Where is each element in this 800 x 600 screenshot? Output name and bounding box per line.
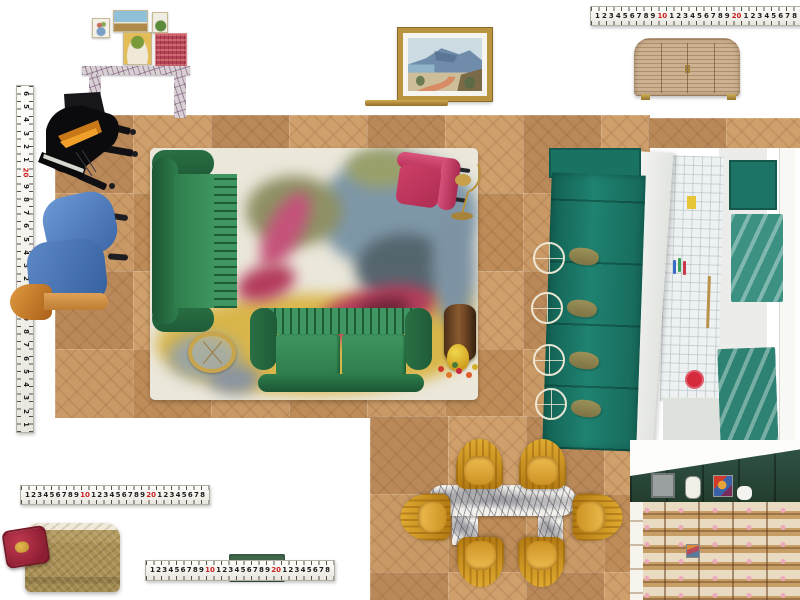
kitchen-wrapped-cabinet xyxy=(731,214,783,302)
chair-seat xyxy=(465,541,496,570)
ruler-number: 3 xyxy=(609,13,614,20)
credenza-door-seam xyxy=(714,43,715,93)
ruler-number: 10 xyxy=(80,492,90,499)
ruler-number: 5 xyxy=(22,369,29,374)
ruler-number: 10 xyxy=(657,13,667,20)
ruler-number: 5 xyxy=(175,567,180,574)
ruler-number: 5 xyxy=(182,492,187,499)
ruler-number: 3 xyxy=(228,567,233,574)
chair-seat xyxy=(464,456,495,485)
pantry-art-tile xyxy=(713,475,733,497)
ruler-number: 6 xyxy=(122,492,127,499)
pantry-appliance xyxy=(651,473,675,498)
ruler-number: 9 xyxy=(22,184,29,189)
ruler-number: 2 xyxy=(222,567,227,574)
ruler-number: 2 xyxy=(288,567,293,574)
ruler-number: 4 xyxy=(690,13,695,20)
credenza-handle xyxy=(688,65,690,73)
ruler-number: 4 xyxy=(176,492,181,499)
ruler-number: 7 xyxy=(785,13,790,20)
ruler-number: 4 xyxy=(22,118,29,123)
ruler-number: 6 xyxy=(56,492,61,499)
sofa-arm xyxy=(250,308,277,370)
ruler-number: 7 xyxy=(253,567,258,574)
console-table-leg xyxy=(174,74,186,118)
ruler-number: 7 xyxy=(187,567,192,574)
ruler-number: 2 xyxy=(22,144,29,149)
dining-chair[interactable] xyxy=(457,537,504,587)
counter-stool[interactable] xyxy=(533,242,565,274)
sofa-seat xyxy=(174,174,216,308)
flower xyxy=(466,372,472,378)
dining-chair[interactable] xyxy=(518,537,565,587)
ruler-number: 3 xyxy=(295,567,300,574)
moodboard-canvas: 123456789101234567892012345678 654321209… xyxy=(0,0,800,600)
ruler-number: 1 xyxy=(22,422,29,427)
ruler-number: 6 xyxy=(630,13,635,20)
ruler-number: 20 xyxy=(146,492,156,499)
ruler-number: 1 xyxy=(216,567,221,574)
ruler-number: 2 xyxy=(97,492,102,499)
armchair-seat xyxy=(395,163,442,208)
credenza[interactable] xyxy=(634,38,740,96)
ruler-number: 9 xyxy=(140,492,145,499)
ruler-number: 9 xyxy=(651,13,656,20)
credenza-door-seam xyxy=(661,43,662,93)
ruler-number: 20 xyxy=(22,168,29,178)
ruler-number: 6 xyxy=(188,492,193,499)
landscape-art xyxy=(408,38,482,91)
ruler-number: 5 xyxy=(22,104,29,109)
sofa-pleated-edge xyxy=(214,174,237,308)
ruler-number: 1 xyxy=(282,567,287,574)
kitchen-yellow-note xyxy=(687,196,696,209)
ruler-number: 2 xyxy=(156,567,161,574)
art-print-pear-figure[interactable] xyxy=(123,32,152,65)
ruler-number: 3 xyxy=(757,13,762,20)
tray-side-table[interactable] xyxy=(188,332,236,373)
ruler-number: 4 xyxy=(168,567,173,574)
flower-leaf xyxy=(452,362,458,368)
ruler-number: 20 xyxy=(271,567,281,574)
ruler-number: 1 xyxy=(150,567,155,574)
ruler-number: 1 xyxy=(595,13,600,20)
pantry-timber-shelving xyxy=(630,502,800,600)
ruler-number: 8 xyxy=(718,13,723,20)
ruler-number: 6 xyxy=(778,13,783,20)
sofa-cushion xyxy=(342,334,406,376)
ruler-number: 3 xyxy=(37,492,42,499)
flower xyxy=(438,366,444,372)
art-print-vase[interactable] xyxy=(92,18,110,38)
ruler-number: 2 xyxy=(750,13,755,20)
pantry-sink xyxy=(685,476,701,499)
ruler-number: 1 xyxy=(25,492,30,499)
chair-leg xyxy=(108,253,128,260)
ruler-number: 5 xyxy=(771,13,776,20)
ruler-number: 2 xyxy=(31,492,36,499)
ruler-number: 8 xyxy=(22,329,29,334)
ruler-number: 2 xyxy=(163,492,168,499)
ruler-number: 2 xyxy=(22,409,29,414)
dining-chair[interactable] xyxy=(573,494,623,541)
ruler-number: 4 xyxy=(22,382,29,387)
ruler-number: 4 xyxy=(235,567,240,574)
ruler-number: 5 xyxy=(116,492,121,499)
ruler-number: 9 xyxy=(199,567,204,574)
ruler-number: 7 xyxy=(711,13,716,20)
flower-posy[interactable] xyxy=(436,358,480,380)
ruler-number: 8 xyxy=(259,567,264,574)
sofa-arm xyxy=(405,308,432,370)
counter-stool[interactable] xyxy=(535,388,567,420)
ruler-number: 6 xyxy=(313,567,318,574)
kitchen-red-logo xyxy=(685,370,704,389)
ruler-number: 3 xyxy=(103,492,108,499)
credenza-handle xyxy=(685,65,687,73)
timber-stool[interactable] xyxy=(10,280,108,324)
ruler-number: 5 xyxy=(50,492,55,499)
ruler-number: 5 xyxy=(623,13,628,20)
art-print-clouds[interactable] xyxy=(113,10,148,32)
kitchen-wall-cabinet xyxy=(729,160,777,210)
ruler-number: 4 xyxy=(301,567,306,574)
parquet-floor-top-right[interactable] xyxy=(648,118,800,148)
ruler-number: 5 xyxy=(697,13,702,20)
ruler-number: 6 xyxy=(22,356,29,361)
ruler-number: 6 xyxy=(247,567,252,574)
ruler-number: 1 xyxy=(157,492,162,499)
ruler-number: 8 xyxy=(644,13,649,20)
ruler-number: 2 xyxy=(602,13,607,20)
ruler-number: 6 xyxy=(181,567,186,574)
ruler-top[interactable]: 123456789101234567892012345678 xyxy=(590,6,800,26)
kitchen-photo[interactable] xyxy=(533,148,795,455)
flower xyxy=(446,372,452,378)
pantry-postcard xyxy=(686,544,700,558)
kitchen-utensil xyxy=(673,260,676,274)
ruler-number: 2 xyxy=(676,13,681,20)
ruler-number: 9 xyxy=(725,13,730,20)
stool-bar xyxy=(44,293,108,310)
ruler-number: 4 xyxy=(43,492,48,499)
ruler-number: 4 xyxy=(616,13,621,20)
ruler-number: 7 xyxy=(22,343,29,348)
flower xyxy=(472,364,478,370)
ruler-number: 7 xyxy=(62,492,67,499)
dining-chair[interactable] xyxy=(519,439,566,489)
ruler-bottom-left[interactable]: 123456789101234567892012345678 xyxy=(20,485,210,505)
ruler-number: 4 xyxy=(764,13,769,20)
ruler-number: 3 xyxy=(162,567,167,574)
pantry-white-faucet xyxy=(737,486,752,500)
ruler-number: 3 xyxy=(22,131,29,136)
ruler-number: 8 xyxy=(134,492,139,499)
ruler-number: 10 xyxy=(205,567,215,574)
sofa-cushion xyxy=(276,334,340,376)
ruler-number: 20 xyxy=(732,13,742,20)
red-cushion[interactable] xyxy=(1,525,50,569)
ruler-number: 8 xyxy=(68,492,73,499)
pantry-photo[interactable] xyxy=(630,440,800,600)
chair-seat xyxy=(526,541,557,570)
ruler-number: 3 xyxy=(683,13,688,20)
ruler-number: 3 xyxy=(22,395,29,400)
art-print-plate[interactable] xyxy=(152,12,168,33)
ruler-bottom-center[interactable]: 123456789101234567892012345678 xyxy=(145,560,335,581)
counter-stool[interactable] xyxy=(533,344,565,376)
dining-chair[interactable] xyxy=(456,439,503,489)
ruler-number: 1 xyxy=(669,13,674,20)
ruler-number: 9 xyxy=(74,492,79,499)
sofa-front-roll xyxy=(258,374,424,392)
ruler-number: 6 xyxy=(704,13,709,20)
ruler-number: 1 xyxy=(22,157,29,162)
ruler-number: 8 xyxy=(792,13,797,20)
ruler-number: 5 xyxy=(307,567,312,574)
counter-stool[interactable] xyxy=(531,292,563,324)
chair-seat xyxy=(418,502,447,533)
ruler-number: 8 xyxy=(200,492,205,499)
ruler-number: 1 xyxy=(91,492,96,499)
floor-lamp[interactable] xyxy=(438,158,484,224)
chair-seat xyxy=(527,456,558,485)
landscape-painting[interactable] xyxy=(398,28,492,101)
ruler-number: 7 xyxy=(319,567,324,574)
kitchen-utensil xyxy=(678,258,681,272)
art-print-red-texture[interactable] xyxy=(155,33,187,67)
ruler-number: 1 xyxy=(744,13,749,20)
credenza-foot xyxy=(641,94,650,100)
dining-chair[interactable] xyxy=(401,494,451,541)
grand-piano[interactable] xyxy=(36,92,140,198)
sofa-green-left[interactable] xyxy=(152,150,237,332)
sofa-green-bottom[interactable] xyxy=(250,308,432,392)
kitchen-wrapped-cabinet xyxy=(717,347,779,454)
flower xyxy=(456,368,462,374)
ruler-number: 4 xyxy=(110,492,115,499)
ruler-number: 8 xyxy=(193,567,198,574)
kitchen-utensil xyxy=(683,261,686,275)
ruler-number: 7 xyxy=(194,492,199,499)
ruler-number: 7 xyxy=(128,492,133,499)
ruler-number: 3 xyxy=(170,492,175,499)
ruler-number: 8 xyxy=(325,567,330,574)
ruler-number: 7 xyxy=(637,13,642,20)
sofa-pleated-edge xyxy=(258,308,424,334)
credenza-foot xyxy=(727,94,736,100)
chair-seat xyxy=(577,502,606,533)
brass-rail[interactable] xyxy=(365,100,448,106)
pantry-white-column xyxy=(630,502,643,600)
ruler-number: 6 xyxy=(22,91,29,96)
ruler-number: 5 xyxy=(241,567,246,574)
ruler-number: 9 xyxy=(265,567,270,574)
